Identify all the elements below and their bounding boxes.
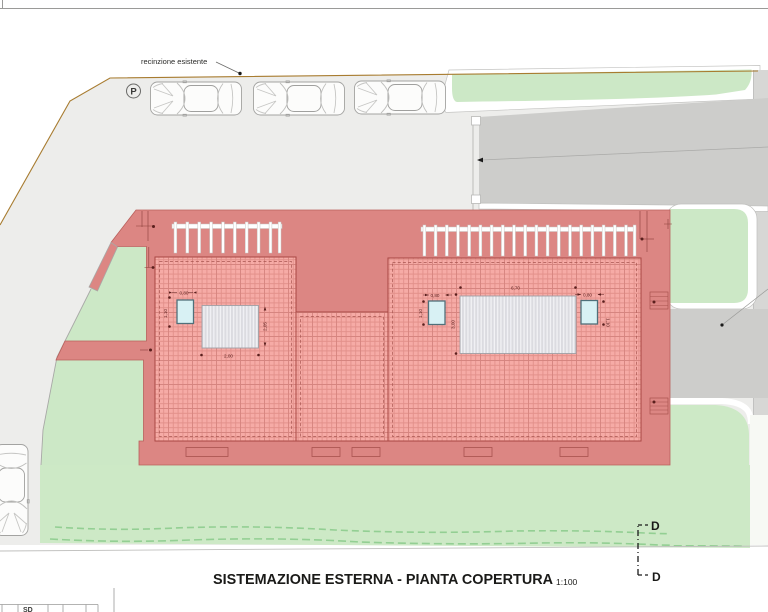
svg-text:3,00: 3,00 [451, 320, 456, 329]
svg-text:SISTEMAZIONE ESTERNA - PIANTA: SISTEMAZIONE ESTERNA - PIANTA COPERTURA [213, 571, 553, 588]
svg-text:6,70: 6,70 [511, 286, 520, 291]
svg-text:SD: SD [23, 607, 33, 612]
svg-text:1,10: 1,10 [606, 318, 611, 327]
svg-text:D: D [651, 519, 660, 533]
svg-text:0,80: 0,80 [583, 293, 592, 298]
svg-text:D: D [652, 570, 661, 584]
svg-text:recinzione esistente: recinzione esistente [141, 57, 207, 66]
svg-text:0,80: 0,80 [180, 291, 189, 296]
svg-text:2,05: 2,05 [263, 322, 268, 331]
svg-text:1,10: 1,10 [418, 309, 423, 318]
svg-text:P: P [130, 87, 137, 98]
svg-text:0,80: 0,80 [431, 293, 440, 298]
svg-text:1:100: 1:100 [556, 577, 578, 587]
svg-text:1,10: 1,10 [163, 309, 168, 318]
svg-text:2,00: 2,00 [224, 354, 233, 359]
